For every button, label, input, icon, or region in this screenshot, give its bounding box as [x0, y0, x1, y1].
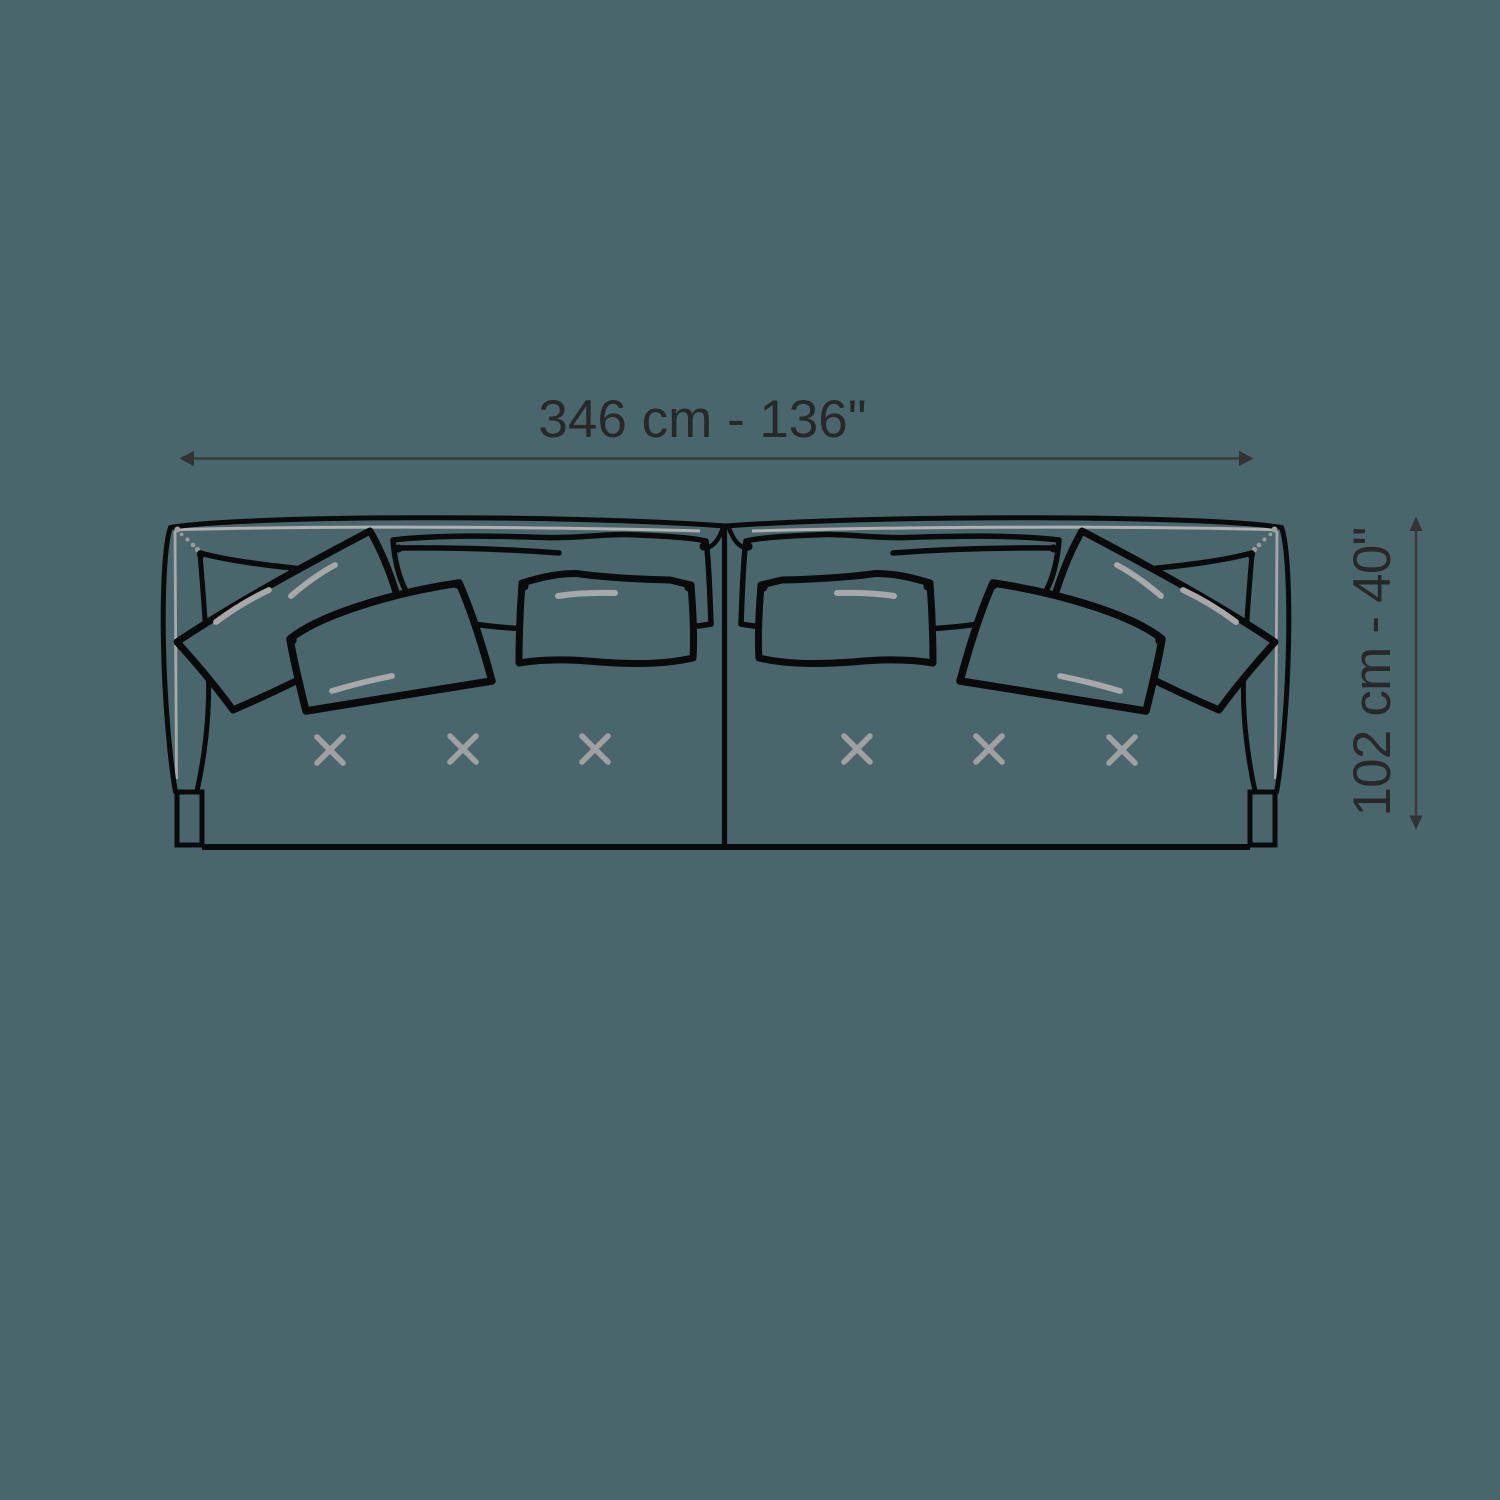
- svg-text:102 cm - 40": 102 cm - 40": [1343, 527, 1402, 816]
- svg-text:346 cm - 136": 346 cm - 136": [538, 390, 866, 449]
